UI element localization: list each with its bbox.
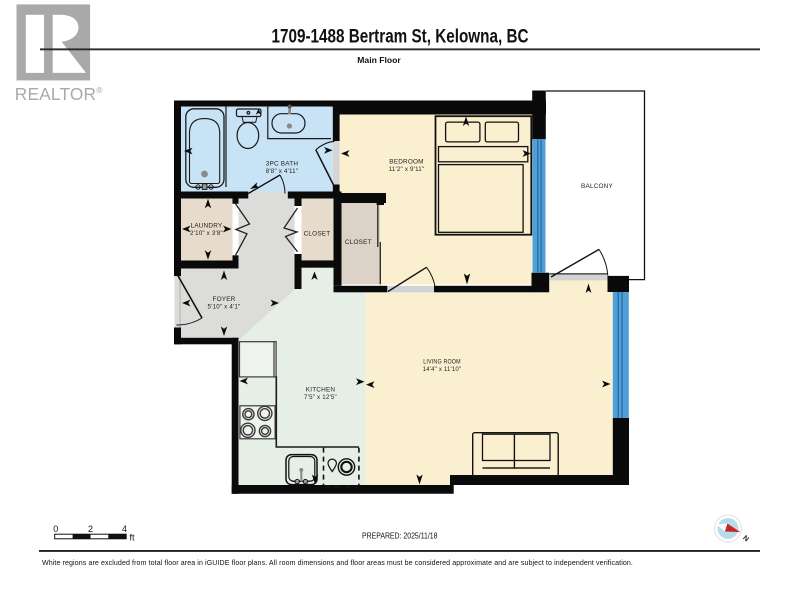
svg-text:FOYER: FOYER	[212, 296, 235, 303]
svg-text:ft: ft	[130, 533, 136, 543]
svg-text:KITCHEN: KITCHEN	[306, 387, 336, 394]
svg-text:1709-1488 Bertram St, Kelowna,: 1709-1488 Bertram St, Kelowna, BC	[272, 27, 529, 48]
svg-text:11'2" x 9'11": 11'2" x 9'11"	[389, 166, 425, 173]
svg-text:BALCONY: BALCONY	[581, 183, 613, 190]
svg-text:5'10" x 4'1": 5'10" x 4'1"	[208, 303, 241, 310]
svg-text:2: 2	[88, 524, 93, 534]
svg-text:LIVING ROOM: LIVING ROOM	[423, 359, 461, 366]
svg-text:Main Floor: Main Floor	[357, 55, 401, 65]
svg-text:8'8" x 4'11": 8'8" x 4'11"	[266, 168, 298, 175]
svg-text:3PC BATH: 3PC BATH	[266, 161, 299, 168]
svg-text:7'5" x 12'5": 7'5" x 12'5"	[304, 394, 337, 401]
svg-text:BEDROOM: BEDROOM	[389, 159, 423, 166]
svg-text:LAUNDRY: LAUNDRY	[191, 223, 223, 230]
svg-text:REALTOR®: REALTOR®	[15, 84, 103, 104]
svg-text:CLOSET: CLOSET	[345, 239, 372, 246]
svg-text:N: N	[741, 533, 751, 543]
svg-text:White regions are excluded fro: White regions are excluded from total fl…	[42, 560, 633, 567]
svg-text:2'10" x 3'8": 2'10" x 3'8"	[190, 230, 223, 237]
svg-text:14'4" x 11'10": 14'4" x 11'10"	[423, 366, 462, 373]
svg-text:CLOSET: CLOSET	[304, 230, 331, 237]
svg-text:0: 0	[53, 524, 58, 534]
svg-text:PREPARED: 2025/11/18: PREPARED: 2025/11/18	[362, 530, 438, 540]
svg-text:4: 4	[122, 524, 127, 534]
